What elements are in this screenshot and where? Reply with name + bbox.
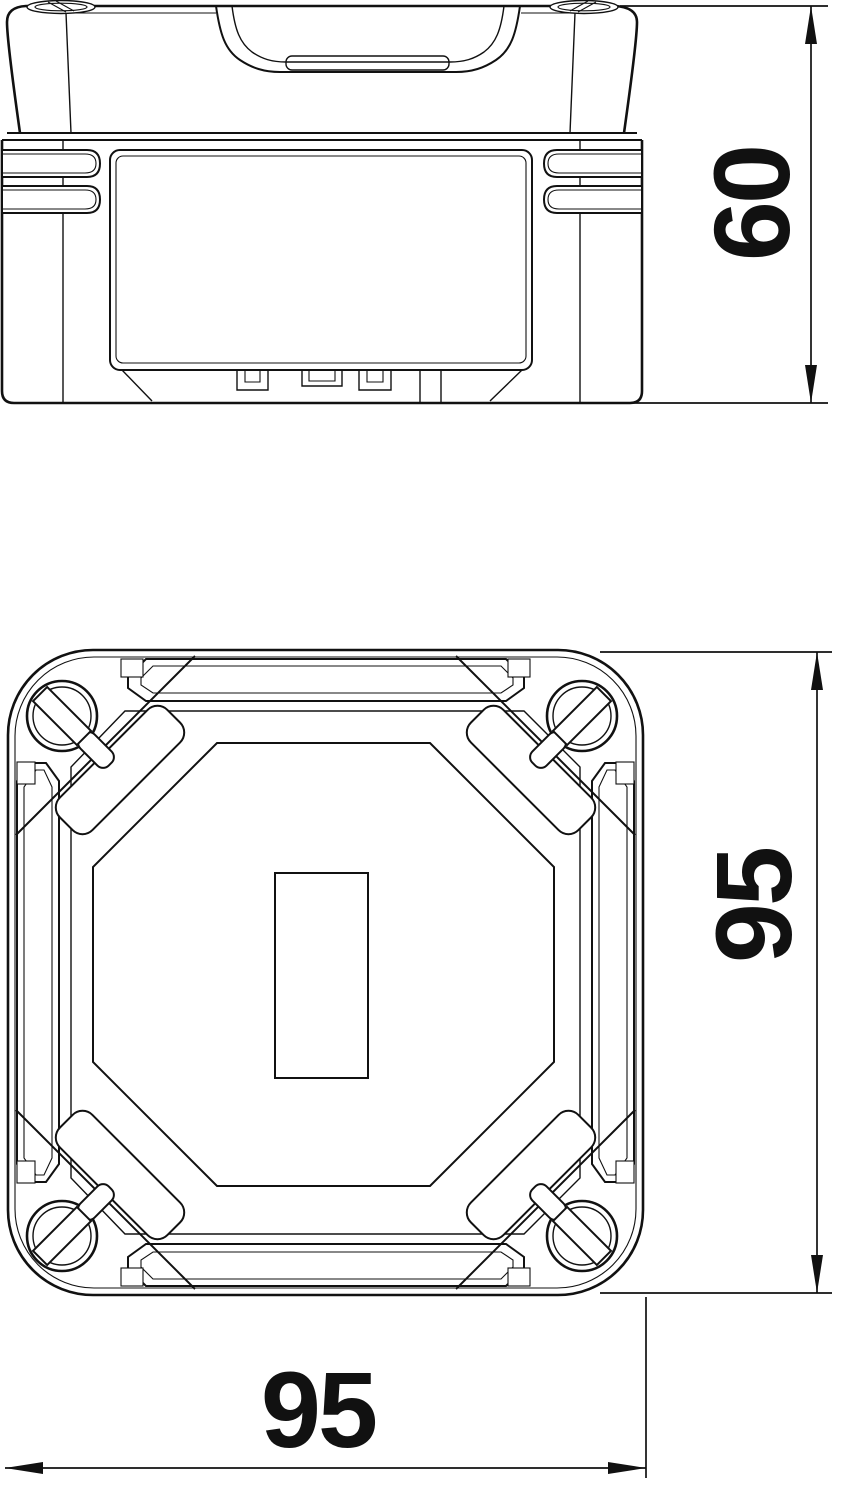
clip-foot-left xyxy=(237,370,268,390)
corner-screw-top-left xyxy=(27,681,117,771)
clip-foot-left-inner xyxy=(245,370,260,382)
dimension-width: 95 xyxy=(5,1297,646,1478)
base xyxy=(2,140,642,403)
technical-drawing: 60 xyxy=(0,0,847,1500)
channel-end-tab xyxy=(616,762,634,784)
channel-end-tab xyxy=(508,1268,530,1286)
channel-end-tab xyxy=(17,762,35,784)
drawing-sheet: 60 xyxy=(0,0,847,1500)
height-dimension-label: 60 xyxy=(691,147,812,261)
channel-end-tab xyxy=(616,1161,634,1183)
handle-recess xyxy=(216,6,520,72)
top-screw-bump-right xyxy=(550,1,618,14)
center-knockout xyxy=(275,873,368,1078)
clip-center-notch xyxy=(302,370,342,386)
corner-pads xyxy=(50,700,601,1245)
lid-corner-edge-left xyxy=(66,13,71,133)
inner-face-outline xyxy=(71,711,580,1234)
arrowhead-left-icon xyxy=(5,1462,43,1474)
arrowhead-down-icon xyxy=(811,1255,823,1293)
arrowhead-down-icon xyxy=(805,365,817,403)
channel-end-tab xyxy=(121,1268,143,1286)
cover-panel xyxy=(110,150,532,370)
edge-channel-left xyxy=(17,762,59,1183)
top-screw-bump-left xyxy=(27,1,95,14)
width-dimension-label: 95 xyxy=(261,1349,376,1470)
arrowhead-right-icon xyxy=(608,1462,646,1474)
clip-foot-right xyxy=(359,370,391,390)
side-slats-right xyxy=(544,150,642,213)
bottom-view xyxy=(8,650,643,1295)
corner-screw-bottom-right xyxy=(527,1181,617,1271)
depth-dimension-label: 95 xyxy=(693,848,814,963)
channel-end-tab xyxy=(121,659,143,677)
strip-step-right xyxy=(490,370,522,401)
side-slats-left xyxy=(2,150,100,213)
recess-grip-bar xyxy=(286,56,449,70)
clip-center-notch-inner xyxy=(309,370,335,381)
side-view xyxy=(2,1,642,404)
edge-channel-right xyxy=(592,762,634,1183)
parting-line xyxy=(2,133,642,140)
edge-channel-bottom xyxy=(121,1244,530,1286)
clip-ribs xyxy=(420,370,441,403)
corner-screw-bottom-left xyxy=(27,1181,117,1271)
octagon-face xyxy=(93,743,554,1186)
strip-step-left xyxy=(122,370,152,401)
edge-channel-top xyxy=(121,659,530,701)
clip-foot-right-inner xyxy=(367,370,383,382)
arrowhead-up-icon xyxy=(805,6,817,44)
channel-end-tab xyxy=(17,1161,35,1183)
lid-corner-edge-right xyxy=(570,13,575,133)
arrowhead-up-icon xyxy=(811,652,823,690)
channel-end-tab xyxy=(508,659,530,677)
recess-mid xyxy=(232,6,504,62)
corner-screw-top-right xyxy=(527,681,617,771)
mounting-clip-strip xyxy=(122,370,522,403)
